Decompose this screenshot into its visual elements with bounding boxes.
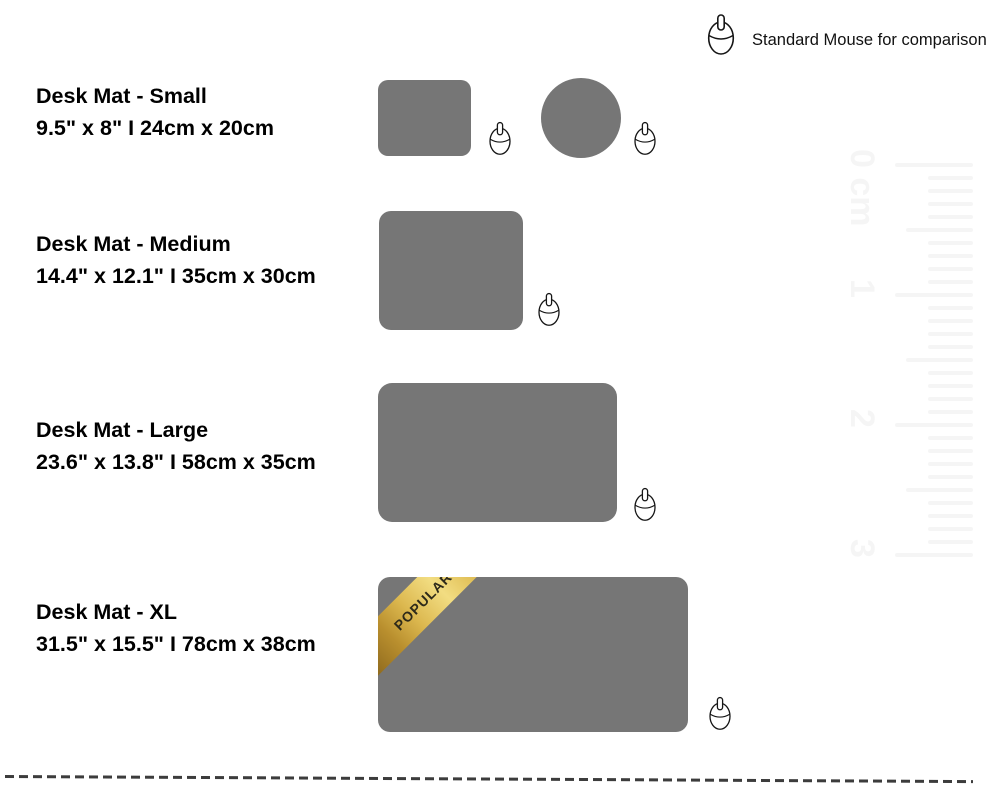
mat-small-rectangle	[378, 80, 471, 156]
product-title: Desk Mat - Small	[36, 80, 274, 112]
ruler-label: 0 cm	[842, 149, 881, 227]
ruler-tick	[928, 514, 973, 518]
ruler-tick	[928, 306, 973, 310]
mat-large-rectangle	[378, 383, 617, 522]
mouse-icon	[487, 118, 513, 158]
product-title: Desk Mat - XL	[36, 596, 316, 628]
product-label: Desk Mat - Large 23.6" x 13.8" I 58cm x …	[36, 414, 316, 478]
size-comparison-canvas: Standard Mouse for comparison Desk Mat -…	[0, 0, 1000, 800]
product-title: Desk Mat - Large	[36, 414, 316, 446]
popular-ribbon-badge: POPULAR	[378, 577, 498, 676]
ruler-tick	[928, 332, 973, 336]
ruler-tick	[928, 189, 973, 193]
mouse-icon	[536, 289, 562, 329]
ruler-tick	[928, 254, 973, 258]
ruler-tick	[895, 293, 973, 297]
product-dimensions: 31.5" x 15.5" I 78cm x 38cm	[36, 628, 316, 660]
ruler-tick	[895, 553, 973, 557]
ruler-tick	[928, 215, 973, 219]
product-label: Desk Mat - Small 9.5" x 8" I 24cm x 20cm	[36, 80, 274, 144]
mat-small-round	[541, 78, 621, 158]
ruler-tick	[928, 436, 973, 440]
ruler-tick	[928, 462, 973, 466]
ruler-tick	[928, 202, 973, 206]
ruler-tick	[928, 371, 973, 375]
ruler-label: 3	[842, 539, 881, 558]
mouse-icon	[707, 693, 733, 733]
ruler-tick	[895, 163, 973, 167]
mouse-icon	[632, 118, 658, 158]
ruler-tick	[928, 501, 973, 505]
product-title: Desk Mat - Medium	[36, 228, 316, 260]
ruler-tick	[928, 475, 973, 479]
comparison-label: Standard Mouse for comparison	[752, 31, 987, 50]
product-dimensions: 9.5" x 8" I 24cm x 20cm	[36, 112, 274, 144]
product-label: Desk Mat - Medium 14.4" x 12.1" I 35cm x…	[36, 228, 316, 292]
ruler-tick	[928, 527, 973, 531]
mouse-icon	[632, 484, 658, 524]
mouse-icon	[705, 13, 737, 55]
ruler-tick	[928, 397, 973, 401]
product-dimensions: 14.4" x 12.1" I 35cm x 30cm	[36, 260, 316, 292]
ruler-tick	[906, 358, 973, 362]
ruler-tick	[928, 280, 973, 284]
ruler-tick	[895, 423, 973, 427]
ruler-tick	[906, 488, 973, 492]
product-dimensions: 23.6" x 13.8" I 58cm x 35cm	[36, 446, 316, 478]
ruler-tick	[928, 540, 973, 544]
mat-xl-rectangle: POPULAR	[378, 577, 688, 732]
ruler-label: 1	[842, 279, 881, 298]
ruler-tick	[928, 384, 973, 388]
mat-medium-rectangle	[379, 211, 523, 330]
ruler-tick	[928, 319, 973, 323]
ruler-label: 2	[842, 409, 881, 428]
ruler-tick	[928, 176, 973, 180]
ruler-tick	[928, 241, 973, 245]
ruler-tick	[928, 267, 973, 271]
ruler-tick	[928, 410, 973, 414]
ruler-tick	[928, 345, 973, 349]
product-label: Desk Mat - XL 31.5" x 15.5" I 78cm x 38c…	[36, 596, 316, 660]
divider-dashed-line	[5, 775, 973, 783]
ruler-tick	[928, 449, 973, 453]
ruler-tick	[906, 228, 973, 232]
